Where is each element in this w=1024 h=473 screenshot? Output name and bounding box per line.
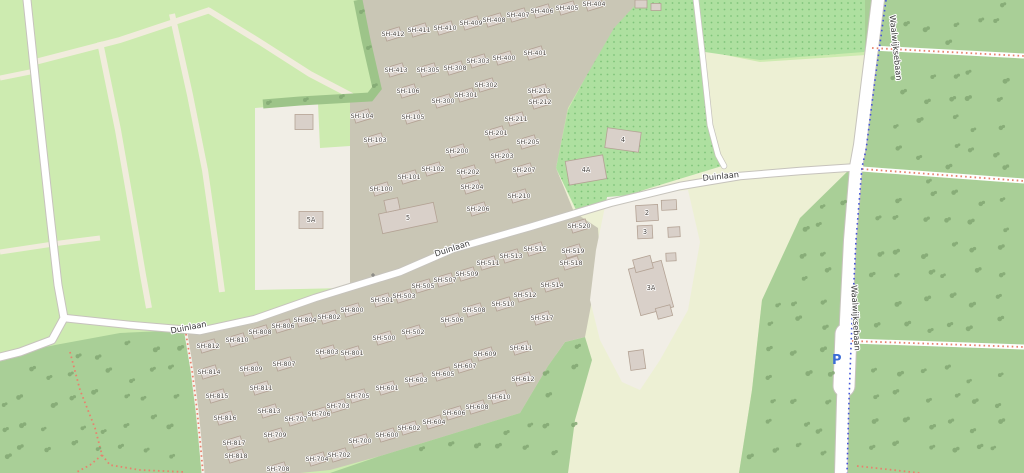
building — [651, 4, 661, 11]
numbered-building-label: 4 — [621, 136, 625, 144]
bungalow-label: SH-501 — [370, 297, 393, 304]
bungalow-label: SH-817 — [222, 440, 245, 447]
bungalow-label: SH-814 — [197, 369, 220, 376]
bungalow-label: SH-810 — [225, 337, 248, 344]
bungalow-label: SH-211 — [504, 116, 527, 123]
bungalow-label: SH-804 — [293, 317, 316, 324]
bungalow-label: SH-408 — [482, 17, 505, 24]
bungalow-label: SH-808 — [248, 329, 271, 336]
bungalow-label: SH-412 — [381, 31, 404, 38]
numbered-building-label: 5 — [406, 214, 410, 222]
bungalow-label: SH-405 — [555, 5, 578, 12]
bungalow-label: SH-816 — [213, 415, 236, 422]
numbered-building-label: 3 — [643, 228, 647, 236]
bungalow-label: SH-812 — [196, 343, 219, 350]
bungalow-label: SH-409 — [459, 20, 482, 27]
bungalow-label: SH-515 — [523, 246, 546, 253]
bungalow-label: SH-708 — [266, 466, 289, 473]
bungalow-label: SH-103 — [363, 137, 386, 144]
bungalow-label: SH-210 — [507, 193, 530, 200]
bungalow-label: SH-802 — [317, 314, 340, 321]
bungalow-label: SH-517 — [530, 315, 553, 322]
bungalow-label: SH-204 — [460, 184, 483, 191]
numbered-building-label: 2 — [645, 209, 649, 217]
bungalow-label: SH-401 — [523, 50, 546, 57]
bungalow-label: SH-503 — [392, 293, 415, 300]
bungalow-label: SH-811 — [249, 385, 272, 392]
bungalow-label: SH-502 — [401, 329, 424, 336]
bungalow-label: SH-207 — [512, 167, 535, 174]
bungalow-label: SH-706 — [307, 411, 330, 418]
bungalow-label: SH-606 — [442, 410, 465, 417]
bungalow-label: SH-803 — [315, 349, 338, 356]
openstreetmap-view: SH-100SH-101SH-102SH-103SH-104SH-105SH-1… — [0, 0, 1024, 473]
bungalow-label: SH-506 — [440, 317, 463, 324]
bungalow-label: SH-212 — [528, 99, 551, 106]
bungalow-label: SH-601 — [375, 385, 398, 392]
bungalow-label: SH-709 — [263, 432, 286, 439]
bungalow-label: SH-607 — [453, 363, 476, 370]
bungalow-label: SH-213 — [527, 88, 550, 95]
building — [668, 227, 681, 238]
bungalow-label: SH-519 — [561, 248, 584, 255]
numbered-building-label: 5A — [307, 216, 316, 224]
bungalow-label: SH-411 — [407, 27, 430, 34]
bungalow-label: SH-520 — [567, 223, 590, 230]
orchard-region-northeast — [699, 0, 888, 60]
bungalow-label: SH-410 — [433, 25, 456, 32]
bungalow-label: SH-500 — [372, 335, 395, 342]
bungalow-label: SH-201 — [484, 130, 507, 137]
bungalow-label: SH-514 — [540, 282, 563, 289]
bungalow-label: SH-700 — [348, 438, 371, 445]
numbered-building-label: 4A — [582, 166, 591, 174]
bungalow-label: SH-705 — [346, 393, 369, 400]
numbered-building-label: 3A — [647, 284, 656, 292]
bungalow-label: SH-801 — [340, 350, 363, 357]
bungalow-label: SH-512 — [513, 292, 536, 299]
bungalow-label: SH-200 — [445, 148, 468, 155]
bungalow-label: SH-203 — [490, 153, 513, 160]
bungalow-label: SH-612 — [511, 376, 534, 383]
bungalow-label: SH-602 — [397, 425, 420, 432]
bungalow-label: SH-305 — [416, 67, 439, 74]
bungalow-label: SH-603 — [404, 377, 427, 384]
bungalow-label: SH-509 — [455, 271, 478, 278]
building — [661, 200, 677, 211]
bungalow-label: SH-507 — [433, 277, 456, 284]
bungalow-label: SH-707 — [284, 416, 307, 423]
bungalow-label: SH-300 — [431, 98, 454, 105]
bungalow-label: SH-611 — [509, 345, 532, 352]
bungalow-label: SH-604 — [422, 419, 445, 426]
bungalow-label: SH-102 — [421, 166, 444, 173]
bungalow-label: SH-510 — [491, 301, 514, 308]
bungalow-label: SH-806 — [271, 323, 294, 330]
bungalow-label: SH-302 — [474, 82, 497, 89]
bungalow-label: SH-608 — [465, 404, 488, 411]
bungalow-label: SH-105 — [401, 114, 424, 121]
bungalow-label: SH-518 — [559, 260, 582, 267]
bungalow-label: SH-818 — [224, 453, 247, 460]
bungalow-label: SH-301 — [454, 92, 477, 99]
bungalow-label: SH-703 — [326, 403, 349, 410]
bungalow-label: SH-513 — [499, 253, 522, 260]
bungalow-label: SH-100 — [369, 186, 392, 193]
parking-icon: P — [832, 353, 842, 368]
map-canvas[interactable]: SH-100SH-101SH-102SH-103SH-104SH-105SH-1… — [0, 0, 1024, 473]
bungalow-label: SH-813 — [257, 408, 280, 415]
bungalow-label: SH-106 — [396, 88, 419, 95]
bungalow-label: SH-702 — [327, 452, 350, 459]
bungalow-label: SH-101 — [397, 174, 420, 181]
building — [295, 115, 313, 130]
bungalow-label: SH-605 — [431, 371, 454, 378]
bungalow-label: SH-400 — [492, 55, 515, 62]
bungalow-label: SH-505 — [411, 283, 434, 290]
bungalow-label: SH-407 — [506, 12, 529, 19]
bungalow-label: SH-303 — [466, 58, 489, 65]
bungalow-label: SH-104 — [350, 113, 373, 120]
bungalow-label: SH-704 — [305, 456, 328, 463]
bungalow-label: SH-206 — [466, 206, 489, 213]
bungalow-label: SH-508 — [462, 307, 485, 314]
bungalow-label: SH-609 — [473, 351, 496, 358]
bungalow-label: SH-308 — [443, 65, 466, 72]
farmland-region-east — [700, 50, 866, 166]
bungalow-label: SH-807 — [272, 361, 295, 368]
bungalow-label: SH-413 — [384, 67, 407, 74]
building — [384, 198, 400, 213]
building — [628, 350, 645, 371]
bungalow-label: SH-205 — [516, 139, 539, 146]
building — [666, 253, 676, 262]
bungalow-label: SH-815 — [205, 393, 228, 400]
bungalow-label: SH-202 — [456, 169, 479, 176]
bungalow-label: SH-511 — [476, 260, 499, 267]
building — [635, 0, 647, 8]
bungalow-label: SH-809 — [239, 366, 262, 373]
bungalow-label: SH-610 — [487, 394, 510, 401]
bungalow-label: SH-404 — [582, 1, 605, 8]
bungalow-label: SH-800 — [340, 307, 363, 314]
bungalow-label: SH-600 — [375, 432, 398, 439]
bungalow-label: SH-406 — [530, 8, 553, 15]
